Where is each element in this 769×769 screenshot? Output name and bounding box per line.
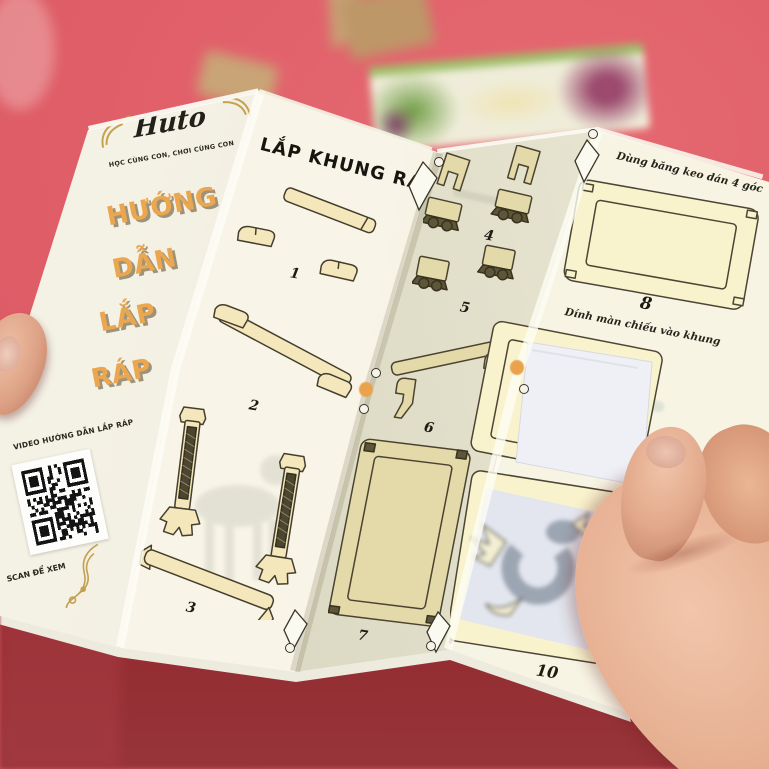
step8-diagram — [558, 176, 768, 321]
fold3-mid-circle — [519, 384, 529, 394]
fold3-top-circle — [588, 129, 598, 139]
step10-number: 10 — [535, 661, 560, 683]
blurred-light-smudge — [0, 0, 55, 110]
fold2-top-circle — [434, 157, 444, 167]
fold3-orange-dot — [510, 360, 524, 375]
fold2-top-kite-marker — [405, 160, 441, 212]
photo-scene: Huto HỌC CÙNG CON, CHƠI CÙNG CON HƯỚNG D… — [0, 0, 769, 769]
fold2-bottom-circle — [285, 643, 295, 653]
fold2-mid-circle1 — [371, 368, 381, 378]
fold3-top-kite-marker — [572, 138, 602, 184]
step3-diagram — [130, 392, 330, 620]
step1-diagram — [228, 185, 380, 290]
fold3-bottom-circle — [426, 641, 436, 651]
fold2-orange-dot — [359, 382, 373, 397]
step5-diagram — [412, 240, 544, 320]
fold2-mid-circle2 — [359, 404, 369, 414]
